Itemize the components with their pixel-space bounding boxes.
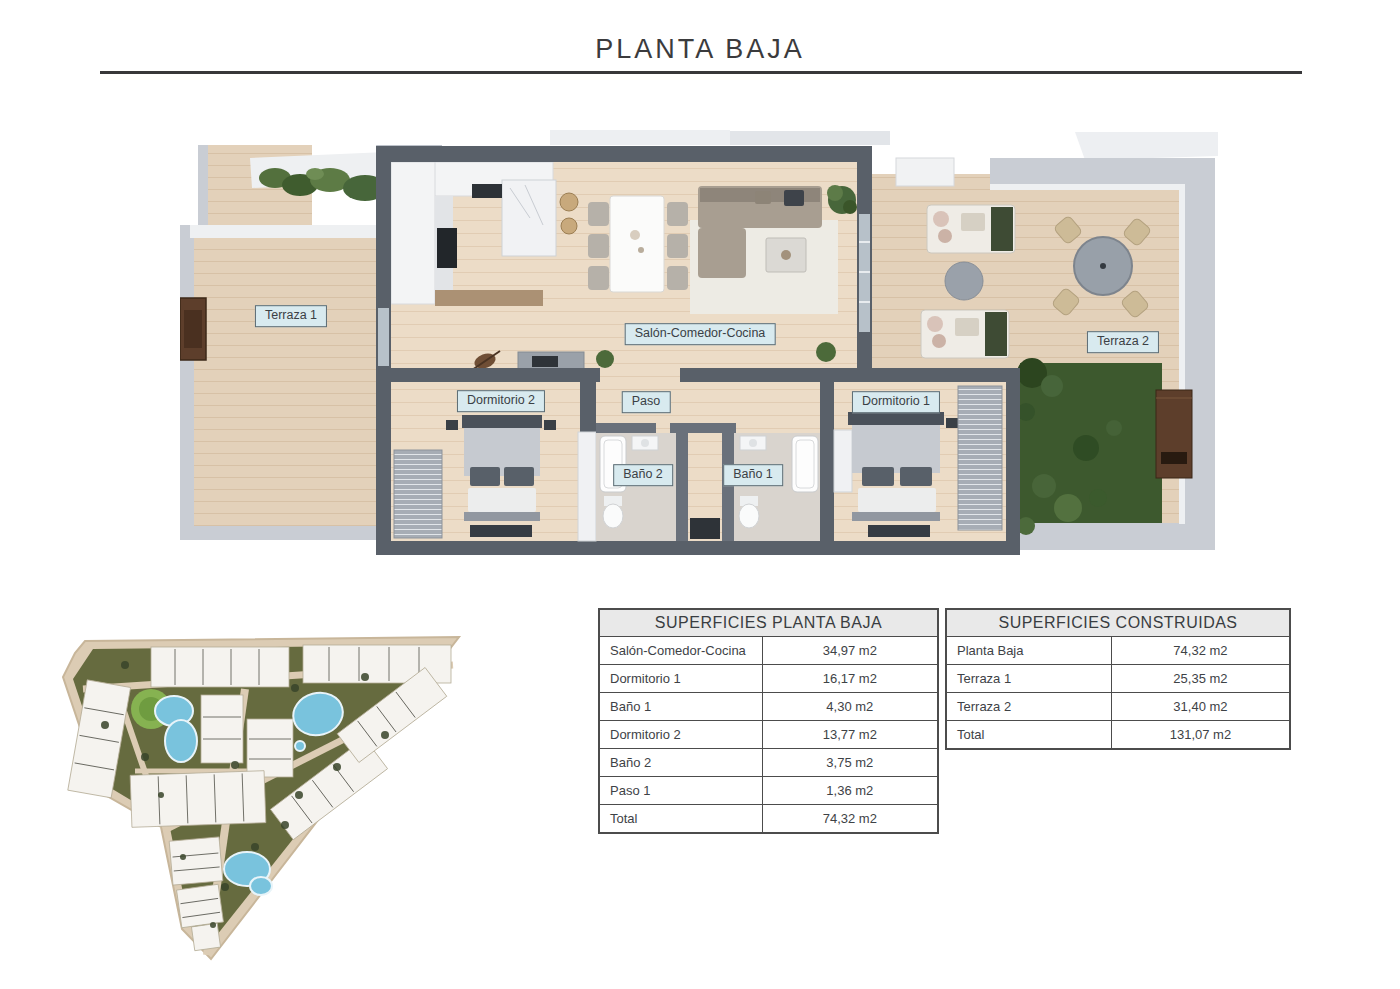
plant: [596, 350, 614, 368]
row-value: 3,75 m2: [763, 749, 937, 776]
brochure-page: PLANTA BAJA: [0, 0, 1400, 989]
room-label-dormitorio-1: Dormitorio 1: [852, 391, 940, 413]
wardrobe: [834, 430, 852, 492]
row-value: 4,30 m2: [763, 693, 937, 720]
glass-door: [378, 308, 389, 366]
row-label: Terraza 2: [947, 693, 1112, 720]
table-row: Planta Baja 74,32 m2: [947, 637, 1289, 665]
row-label: Salón-Comedor-Cocina: [600, 637, 763, 664]
table-row: Salón-Comedor-Cocina 34,97 m2: [600, 637, 937, 665]
room-label-terraza-2: Terraza 2: [1087, 331, 1159, 353]
row-label: Paso 1: [600, 777, 763, 804]
row-value: 34,97 m2: [763, 637, 937, 664]
table-title: SUPERFICIES CONSTRUIDAS: [947, 610, 1289, 637]
toilet: [739, 504, 759, 528]
table-row: Dormitorio 2 13,77 m2: [600, 721, 937, 749]
row-label: Baño 1: [600, 693, 763, 720]
plant: [816, 342, 836, 362]
table-body: Salón-Comedor-Cocina 34,97 m2 Dormitorio…: [600, 637, 937, 832]
row-value: 31,40 m2: [1112, 693, 1289, 720]
kitchen-island: [502, 180, 556, 256]
room-label-salon: Salón-Comedor-Cocina: [625, 323, 776, 345]
laptop: [532, 356, 558, 367]
table-body: Planta Baja 74,32 m2 Terraza 1 25,35 m2 …: [947, 637, 1289, 748]
table-row: Total 74,32 m2: [600, 805, 937, 832]
room-label-dormitorio-2: Dormitorio 2: [457, 390, 545, 412]
washer: [690, 518, 720, 539]
page-title: PLANTA BAJA: [0, 34, 1400, 65]
bedside-rug: [470, 525, 532, 537]
row-value: 1,36 m2: [763, 777, 937, 804]
floor-plan-render: [180, 130, 1220, 580]
superficies-construidas-table: SUPERFICIES CONSTRUIDAS Planta Baja 74,3…: [945, 608, 1291, 750]
row-value: 74,32 m2: [1112, 637, 1289, 664]
row-label: Baño 2: [600, 749, 763, 776]
louver-blinds: [958, 386, 1002, 530]
row-value: 74,32 m2: [763, 805, 937, 832]
table-row: Terraza 1 25,35 m2: [947, 665, 1289, 693]
row-label: Terraza 1: [947, 665, 1112, 692]
sofa-chaise: [698, 228, 746, 278]
table-row: Paso 1 1,36 m2: [600, 777, 937, 805]
site-plan-render: [55, 625, 515, 965]
row-value: 16,17 m2: [763, 665, 937, 692]
table-row: Dormitorio 1 16,17 m2: [600, 665, 937, 693]
row-label: Total: [600, 805, 763, 832]
superficies-planta-baja-table: SUPERFICIES PLANTA BAJA Salón-Comedor-Co…: [598, 608, 939, 834]
pergola-door: [1156, 390, 1192, 478]
oven-column: [437, 228, 457, 268]
wardrobe: [578, 432, 596, 541]
table-row: Baño 2 3,75 m2: [600, 749, 937, 777]
table-row: Baño 1 4,30 m2: [600, 693, 937, 721]
site-plan: [55, 625, 515, 965]
room-label-bano-2: Baño 2: [613, 464, 673, 486]
table-row: Terraza 2 31,40 m2: [947, 693, 1289, 721]
room-label-terraza-1: Terraza 1: [255, 305, 327, 327]
row-value: 25,35 m2: [1112, 665, 1289, 692]
pendant-lamp: [560, 193, 578, 211]
bedside-rug: [868, 525, 930, 537]
lawn-garden: [1017, 358, 1162, 535]
table-row: Total 131,07 m2: [947, 721, 1289, 748]
stove: [472, 184, 502, 198]
row-label: Total: [947, 721, 1112, 748]
lounger-2: [921, 310, 1009, 358]
lounger-1: [927, 205, 1015, 253]
pouf: [945, 262, 983, 300]
room-label-bano-1: Baño 1: [723, 464, 783, 486]
row-value: 13,77 m2: [763, 721, 937, 748]
row-label: Dormitorio 2: [600, 721, 763, 748]
louver-blinds: [394, 450, 442, 538]
row-label: Planta Baja: [947, 637, 1112, 664]
row-label: Dormitorio 1: [600, 665, 763, 692]
table-title: SUPERFICIES PLANTA BAJA: [600, 610, 937, 637]
pendant-lamp: [561, 218, 577, 234]
room-label-paso: Paso: [622, 391, 671, 413]
dining-table: [610, 196, 664, 292]
dining-set: [588, 196, 688, 292]
floor-plan: Terraza 1 Salón-Comedor-Cocina Terraza 2…: [180, 130, 1220, 580]
toilet: [603, 504, 623, 528]
row-value: 131,07 m2: [1112, 721, 1289, 748]
title-divider: [100, 71, 1302, 74]
bed-dormitorio-2: [462, 415, 542, 537]
terrace-cabinet: [896, 158, 954, 186]
